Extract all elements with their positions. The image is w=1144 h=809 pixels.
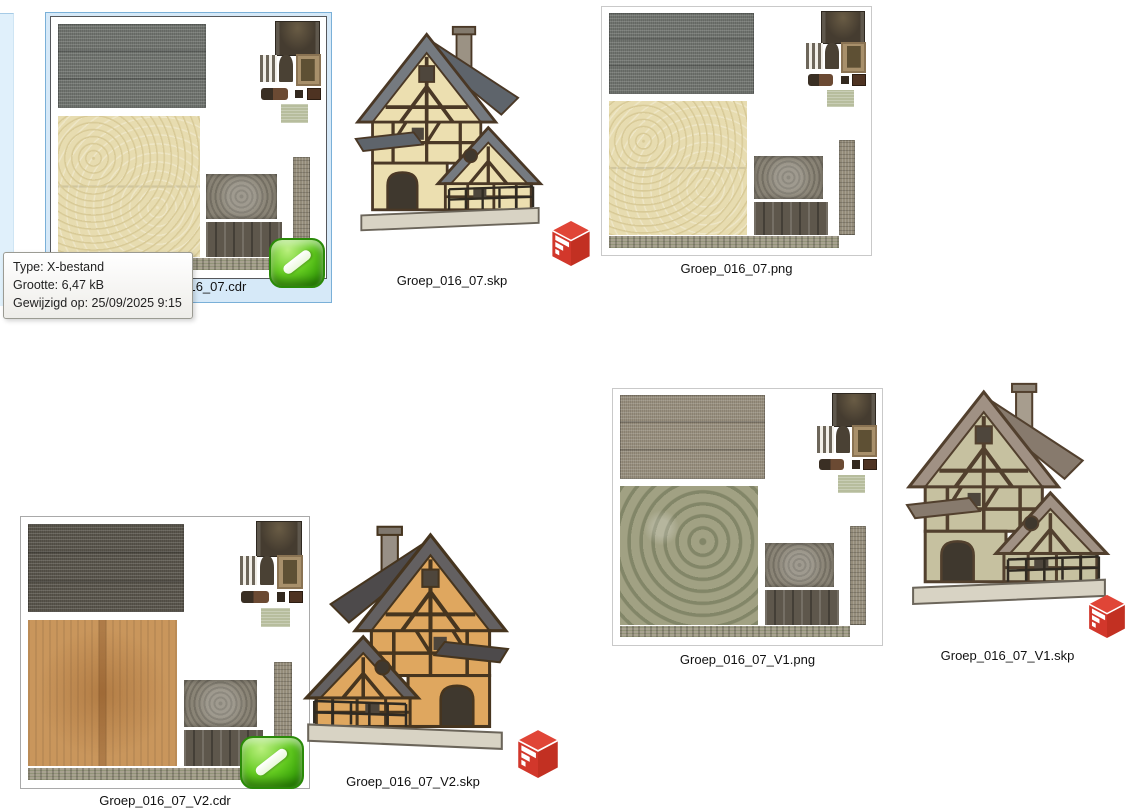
roof-texture-tile <box>609 13 754 94</box>
door-texture-tile <box>256 521 303 557</box>
small-square-tile <box>852 74 865 85</box>
roof-texture-tile <box>620 395 765 478</box>
file-label: Groep_016_07.skp <box>352 273 552 288</box>
file-label: Groep_016_07_V1.png <box>612 652 883 667</box>
green-patch-tile <box>281 104 309 122</box>
wood-bar-tile <box>241 591 268 603</box>
small-door-tile <box>836 426 849 453</box>
file-label: Groep_016_07_V2.skp <box>303 774 523 789</box>
file-item-png-v1[interactable] <box>612 388 883 646</box>
door-texture-tile <box>832 393 876 427</box>
sketchup-logo-icon <box>514 727 562 779</box>
beam-strips-tile <box>806 43 822 69</box>
file-item-png-main[interactable] <box>601 6 872 256</box>
plank-texture-tile <box>765 590 839 625</box>
framed-door-tile <box>296 54 321 87</box>
roof-texture-tile <box>58 24 207 109</box>
texture-atlas-preview <box>613 389 882 645</box>
beam-strips-tile <box>817 426 833 453</box>
green-patch-tile <box>261 608 290 627</box>
wall-texture-tile <box>620 486 759 624</box>
border-strip-tile <box>620 626 850 638</box>
wood-bar-tile <box>819 459 845 471</box>
cobblestone-tile <box>765 543 834 588</box>
wall-texture-tile <box>58 116 200 257</box>
tooltip-modified-line: Gewijzigd op: 25/09/2025 9:15 <box>13 294 182 312</box>
cobblestone-tile <box>206 174 276 220</box>
stone-column-tile <box>850 526 866 625</box>
house-model-thumbnail <box>352 20 548 254</box>
house-model-thumbnail <box>298 524 512 770</box>
stone-column-tile <box>839 140 855 235</box>
wall-texture-tile <box>28 620 176 766</box>
edit-pen-overlay-icon <box>240 736 304 789</box>
edit-pen-overlay-icon <box>269 238 325 288</box>
sketchup-logo-icon <box>1086 592 1128 639</box>
wood-bar-tile <box>261 88 287 100</box>
file-item-skp-v1[interactable] <box>903 374 1115 632</box>
small-square-tile <box>277 592 286 601</box>
small-square-tile <box>863 459 876 471</box>
small-square-tile <box>841 76 849 84</box>
tooltip-size-line: Grootte: 6,47 kB <box>13 276 182 294</box>
file-item-skp-main[interactable] <box>352 20 548 254</box>
small-square-tile <box>307 88 321 100</box>
sketchup-logo-icon <box>549 218 593 267</box>
pen-glyph <box>281 249 312 276</box>
green-patch-tile <box>838 475 865 493</box>
house-model-thumbnail <box>903 374 1115 632</box>
border-strip-tile <box>609 236 839 247</box>
cobblestone-tile <box>184 680 257 727</box>
small-door-tile <box>825 43 838 69</box>
file-explorer-thumbnail-area: _016_07.cdr Type: X-bestand Grootte: 6,4… <box>0 0 1144 809</box>
file-label: Groep_016_07_V1.skp <box>900 648 1115 663</box>
border-strip-tile <box>28 768 274 780</box>
wood-bar-tile <box>808 74 834 85</box>
roof-texture-tile <box>28 524 184 612</box>
framed-door-tile <box>841 42 865 73</box>
file-info-tooltip: Type: X-bestand Grootte: 6,47 kB Gewijzi… <box>3 252 193 319</box>
framed-door-tile <box>852 425 876 457</box>
door-texture-tile <box>821 11 865 44</box>
pen-glyph <box>254 746 290 777</box>
door-texture-tile <box>275 21 320 56</box>
wall-texture-tile <box>609 101 748 235</box>
beam-strips-tile <box>240 556 257 584</box>
texture-atlas-preview <box>602 7 871 255</box>
small-door-tile <box>260 556 274 584</box>
file-label: Groep_016_07_V2.cdr <box>20 793 310 808</box>
file-item-skp-v2[interactable] <box>298 524 512 770</box>
cobblestone-tile <box>754 156 823 199</box>
file-label: Groep_016_07.png <box>601 261 872 276</box>
tooltip-type-line: Type: X-bestand <box>13 258 182 276</box>
small-door-tile <box>279 55 293 82</box>
beam-strips-tile <box>260 55 277 82</box>
small-square-tile <box>295 90 303 99</box>
green-patch-tile <box>827 90 854 107</box>
small-square-tile <box>852 460 860 469</box>
plank-texture-tile <box>754 202 828 235</box>
